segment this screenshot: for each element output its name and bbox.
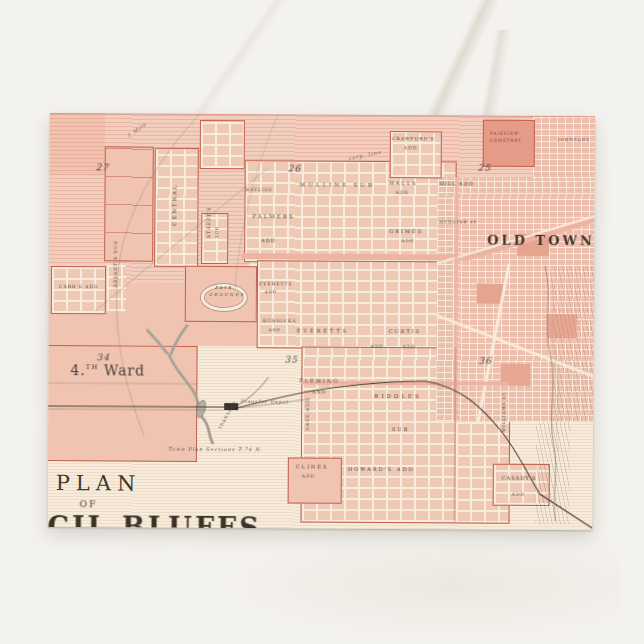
section-number: 27 (96, 163, 110, 172)
district-label: HOWARD'S ADD (348, 467, 415, 472)
district-label: FLEMING (299, 379, 339, 384)
district-label: CRAWFORD'S (392, 137, 435, 142)
district-label: ADD (401, 239, 414, 244)
district-label: ADD (404, 146, 417, 151)
district-label: ADD (396, 191, 409, 196)
map-title-of: OF (80, 500, 98, 509)
district-label: ADD (512, 493, 525, 498)
section-number: 34 (96, 353, 110, 362)
district-label: HALLS (390, 181, 418, 186)
district-label: AND (312, 391, 326, 396)
district-label: BAYLISS (246, 188, 273, 193)
fair-grounds-label: GROUNDS (209, 293, 245, 297)
cemetery-label: CEMETARY (490, 139, 522, 143)
marble-tabletop: { "scene": { "surface": "white marble ta… (0, 0, 644, 644)
district-label: JOHNSONS (558, 138, 590, 142)
district-label: HILL ADD (440, 181, 474, 186)
district-label: ADD (403, 345, 416, 350)
map-title-plan: PLAN (56, 473, 142, 495)
district-label: SUB (392, 427, 409, 432)
district-label: ADD (302, 475, 315, 480)
section-number: 25 (478, 164, 492, 173)
district-label: CLINES (296, 465, 329, 470)
district-label: EVERETTS (297, 329, 350, 334)
district-label: ADD (265, 290, 277, 294)
district-label: CASADY'S (502, 476, 537, 481)
marble-vein (200, 545, 620, 644)
district-label: EVERETTS (259, 282, 293, 287)
district-label: CURTIS (389, 329, 421, 334)
district-label: ADD (261, 238, 276, 243)
map-note: Town Plan Sections T.74 N. (168, 447, 263, 453)
fair-grounds-label: FAIR (215, 286, 233, 290)
district-label: CARR'S ADD (59, 285, 99, 290)
district-label: ADD (269, 328, 281, 332)
cemetery-label: FAIRVIEW (490, 132, 519, 136)
district-label: MULLINS SUB (300, 183, 376, 189)
marble-vein (120, 0, 380, 120)
ward-label: 4.TH Ward (70, 363, 145, 377)
map-postcard: 27 26 25 34 35 36 4.TH Ward OLD TOWN CRA… (47, 113, 595, 530)
district-label: RIDDLES (374, 394, 422, 400)
district-label: PALMERS (252, 214, 294, 220)
map-title-bluffs: CIL BLUFFS (47, 513, 261, 530)
street-label: MYNSTER ST (439, 220, 477, 224)
district-label: ADD (371, 345, 384, 350)
section-number: 26 (288, 164, 302, 173)
transfer-depot-label: Transfer Depot (240, 400, 289, 405)
section-number: 35 (284, 355, 298, 364)
district-label: GRIMES (389, 229, 423, 234)
council-bluffs-map: 27 26 25 34 35 36 4.TH Ward OLD TOWN CRA… (47, 113, 595, 530)
old-town-label: OLD TOWN (487, 234, 595, 248)
section-number: 36 (478, 357, 492, 366)
district-label: BURDICKS (263, 319, 297, 324)
